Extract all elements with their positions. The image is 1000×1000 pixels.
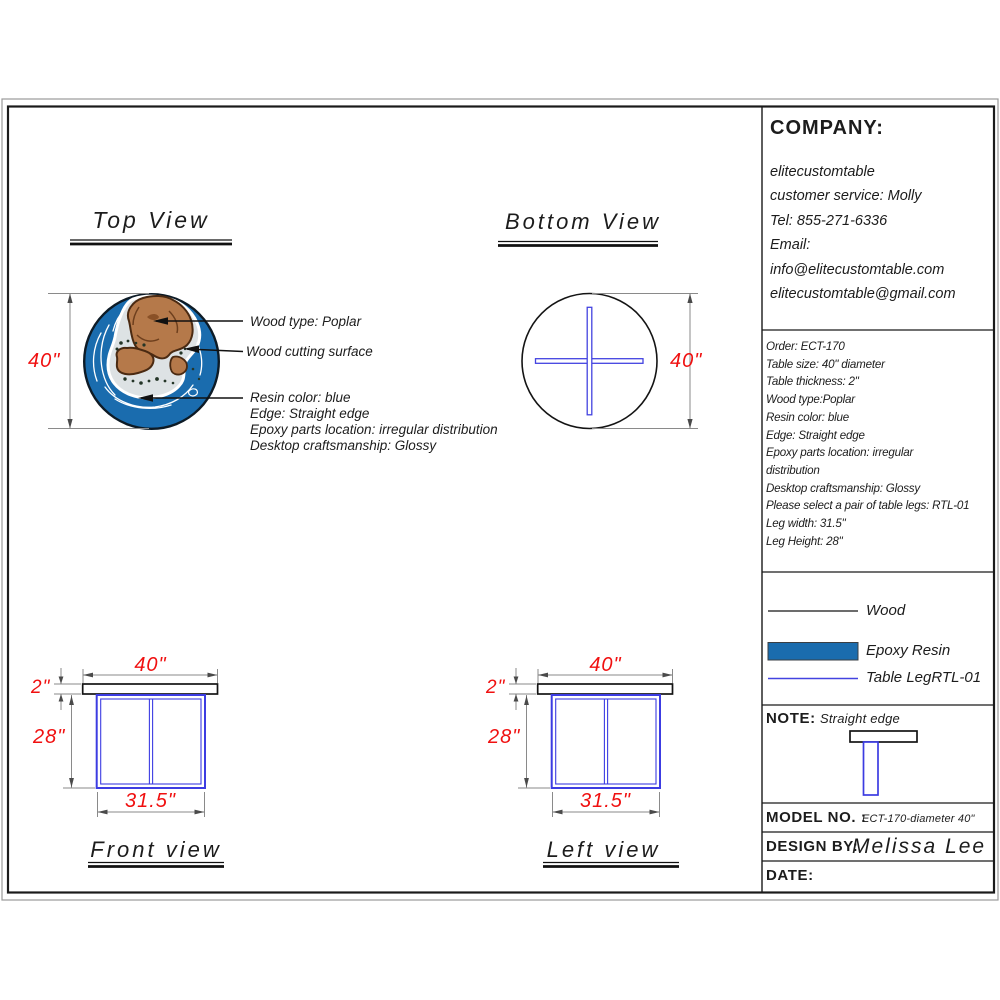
top-view-diameter-label: 40"	[28, 350, 60, 373]
left-view-top-width-label: 40"	[538, 654, 673, 677]
company-email-1: info@elitecustomtable.com	[770, 258, 956, 282]
company-email-2: elitecustomtable@gmail.com	[770, 282, 956, 306]
order-epoxy-location-2: distribution	[766, 462, 969, 480]
company-tel: Tel: 855-271-6336	[770, 209, 956, 233]
order-table-size: Table size: 40" diameter	[766, 356, 969, 374]
order-edge: Edge: Straight edge	[766, 427, 969, 445]
left-view-thickness-label: 2"	[486, 677, 505, 699]
order-craftsmanship: Desktop craftsmanship: Glossy	[766, 480, 969, 498]
callout-edge: Edge: Straight edge	[250, 406, 498, 422]
front-view-thickness-label: 2"	[31, 677, 50, 699]
legend-wood-label: Wood	[866, 602, 905, 619]
note-label: NOTE:	[766, 710, 816, 727]
order-thickness: Table thickness: 2"	[766, 373, 969, 391]
leg-frame-inner	[101, 699, 201, 784]
note-tabletop-profile	[850, 731, 917, 742]
order-legs: Please select a pair of table legs: RTL-…	[766, 497, 969, 515]
bottom-view-diameter-label: 40"	[670, 350, 702, 373]
legend-leg-label: Table LegRTL-01	[866, 669, 981, 686]
legend-epoxy-swatch	[768, 643, 858, 661]
company-service: customer service: Molly	[770, 184, 956, 208]
company-email-label: Email:	[770, 233, 956, 257]
design-by-value: Melissa Lee	[852, 835, 986, 859]
callout-resin-color: Resin color: blue	[250, 390, 498, 406]
drawing-sheet: Top View Bottom View Front view Left vie…	[0, 0, 1000, 1000]
note-leg-profile	[864, 742, 879, 795]
order-wood-type: Wood type:Poplar	[766, 391, 969, 409]
legend-epoxy-label: Epoxy Resin	[866, 642, 950, 659]
callout-wood-surface: Wood cutting surface	[246, 344, 373, 359]
order-epoxy-location-1: Epoxy parts location: irregular	[766, 444, 969, 462]
order-resin-color: Resin color: blue	[766, 409, 969, 427]
left-view-height-label: 28"	[488, 726, 520, 749]
order-number: Order: ECT-170	[766, 338, 969, 356]
front-view-height-label: 28"	[33, 726, 65, 749]
left-view-title: Left view	[535, 837, 672, 863]
leg-frame-outer	[97, 695, 205, 788]
design-by-label: DESIGN BY:	[766, 838, 858, 855]
callout-wood-type: Wood type: Poplar	[250, 314, 361, 329]
leg-cross-vertical	[587, 307, 592, 415]
order-leg-width: Leg width: 31.5"	[766, 515, 969, 533]
company-name: elitecustomtable	[770, 160, 956, 184]
note-value: Straight edge	[820, 711, 900, 726]
left-view-leg-width-label: 31.5"	[552, 790, 659, 813]
date-label: DATE:	[766, 867, 814, 884]
bottom-view-title: Bottom View	[498, 209, 668, 235]
model-no-value: ECT-170-diameter 40"	[862, 813, 975, 825]
model-no-label: MODEL NO. :	[766, 809, 867, 826]
company-info: elitecustomtable customer service: Molly…	[770, 160, 956, 306]
top-view-title: Top View	[70, 207, 232, 234]
company-label: COMPANY:	[770, 117, 884, 140]
order-details: Order: ECT-170 Table size: 40" diameter …	[766, 338, 969, 550]
front-view-top-width-label: 40"	[83, 654, 218, 677]
callout-craftsmanship: Desktop craftsmanship: Glossy	[250, 438, 498, 454]
front-view-leg-width-label: 31.5"	[97, 790, 204, 813]
tabletop-section	[83, 684, 218, 694]
front-view-title: Front view	[88, 837, 224, 863]
callout-epoxy-location: Epoxy parts location: irregular distribu…	[250, 422, 498, 438]
callout-resin-block: Resin color: blue Edge: Straight edge Ep…	[250, 390, 498, 454]
order-leg-height: Leg Height: 28"	[766, 533, 969, 551]
